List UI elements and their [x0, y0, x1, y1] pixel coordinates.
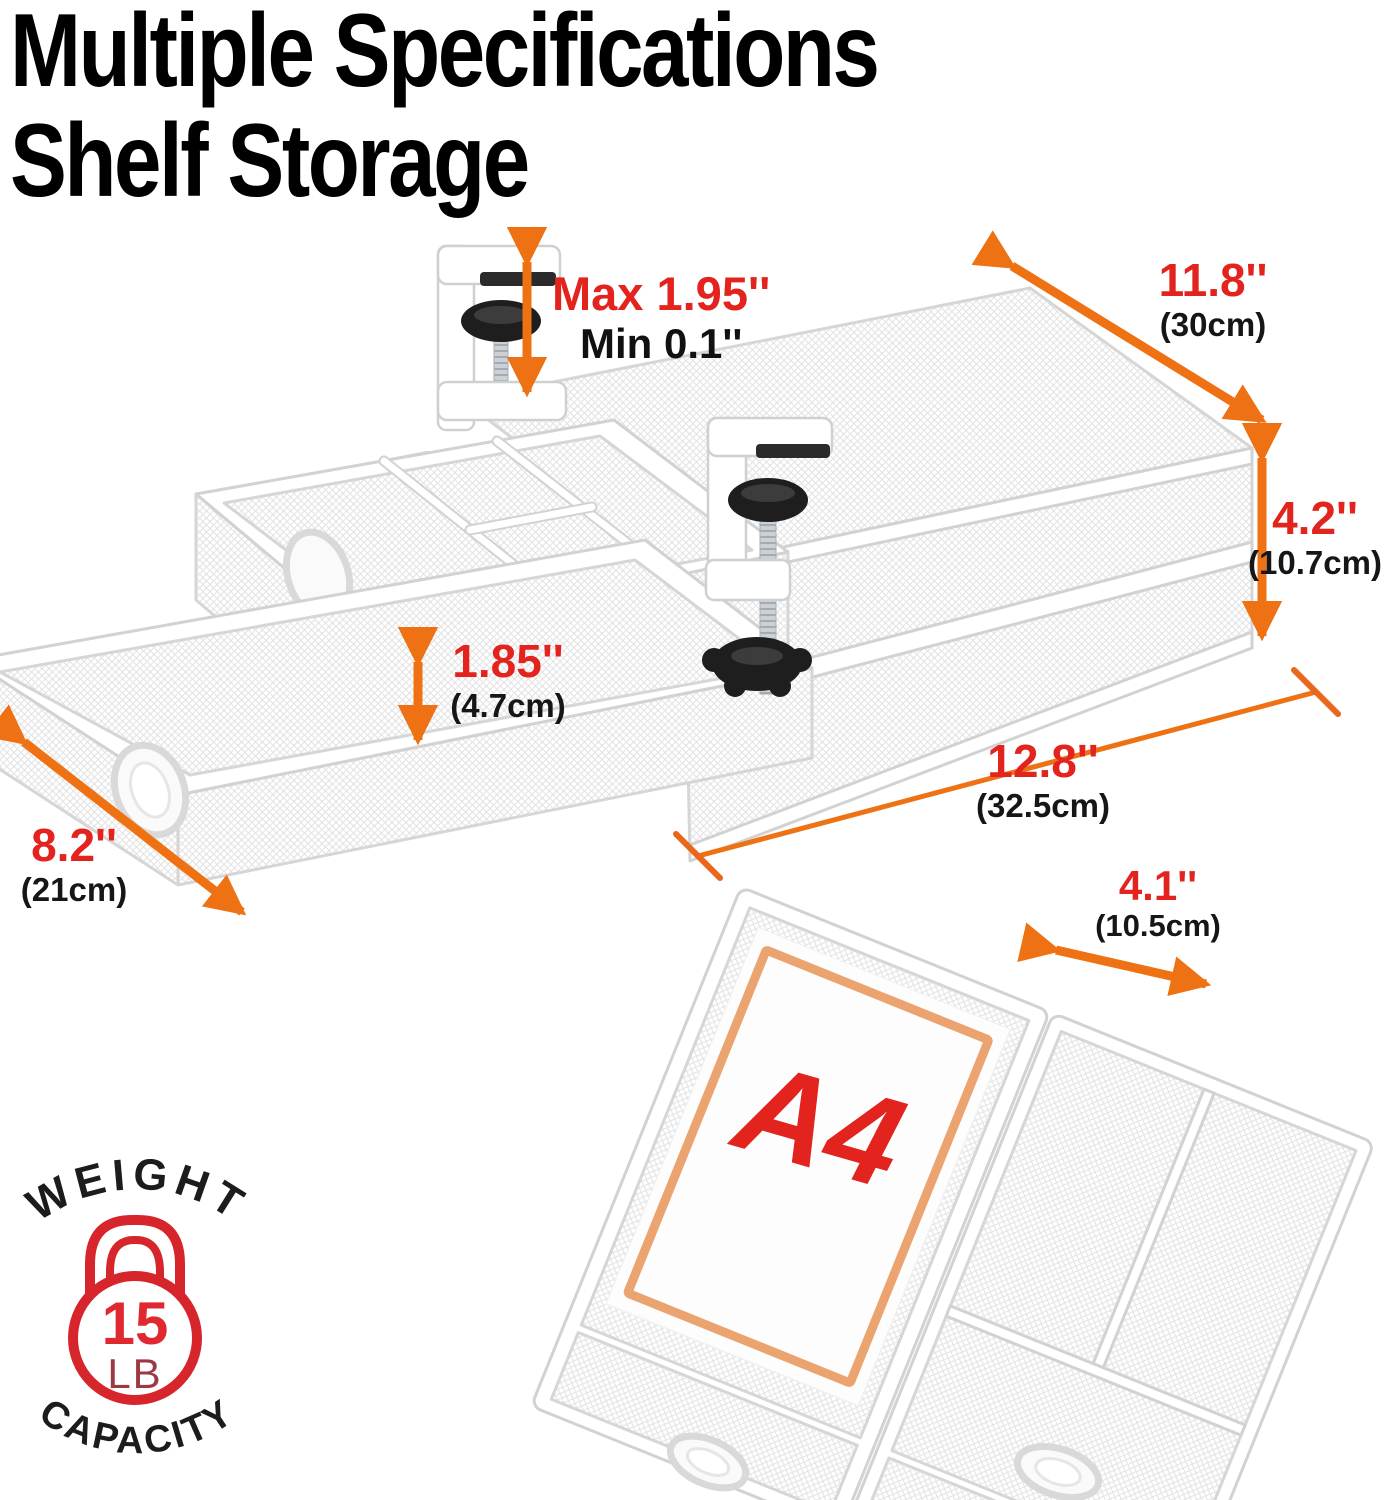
drawer-height-value: 1.85''	[428, 636, 588, 688]
stackable-trays	[531, 887, 1374, 1500]
clamp-mid-bottom-arm	[706, 560, 790, 600]
width-label: 12.8'' (32.5cm)	[928, 736, 1158, 824]
height-metric: (10.7cm)	[1236, 545, 1394, 582]
badge-value: 15	[102, 1290, 169, 1357]
height-value: 4.2''	[1236, 493, 1394, 545]
desk-clamp-left	[438, 246, 566, 430]
height-label: 4.2'' (10.7cm)	[1236, 493, 1394, 581]
compartment-width-label: 4.1'' (10.5cm)	[1078, 862, 1238, 944]
drawer-height-metric: (4.7cm)	[428, 688, 588, 725]
depth-value: 11.8''	[1118, 255, 1308, 307]
compartment-width-metric: (10.5cm)	[1078, 909, 1238, 944]
clamp-mid-knob-highlight	[741, 484, 795, 502]
clamp-max-label: Max 1.95''	[552, 266, 770, 321]
product-infographic: Multiple Specifications Shelf Storage	[0, 0, 1394, 1500]
clamp-left-bottom-arm	[438, 382, 566, 420]
width-value: 12.8''	[928, 736, 1158, 788]
drawer-height-label: 1.85'' (4.7cm)	[428, 636, 588, 724]
clamp-left-knob-highlight	[474, 306, 528, 324]
tray-depth-label: 8.2'' (21cm)	[4, 820, 144, 908]
tray-depth-value: 8.2''	[4, 820, 144, 872]
compartment-width-value: 4.1''	[1078, 862, 1238, 909]
clamp-left-pad	[480, 272, 556, 286]
depth-label: 11.8'' (30cm)	[1118, 255, 1308, 343]
badge-unit: LB	[107, 1350, 162, 1397]
tray-depth-metric: (21cm)	[4, 872, 144, 909]
compartment-width-arrow	[1056, 950, 1206, 984]
depth-metric: (30cm)	[1118, 307, 1308, 344]
weight-capacity-badge: WEIGHT 15 LB CAPACITY	[12, 1148, 278, 1478]
clamp-mid-pad	[756, 444, 830, 458]
width-metric: (32.5cm)	[928, 788, 1158, 825]
clamp-min-label: Min 0.1''	[580, 320, 742, 368]
